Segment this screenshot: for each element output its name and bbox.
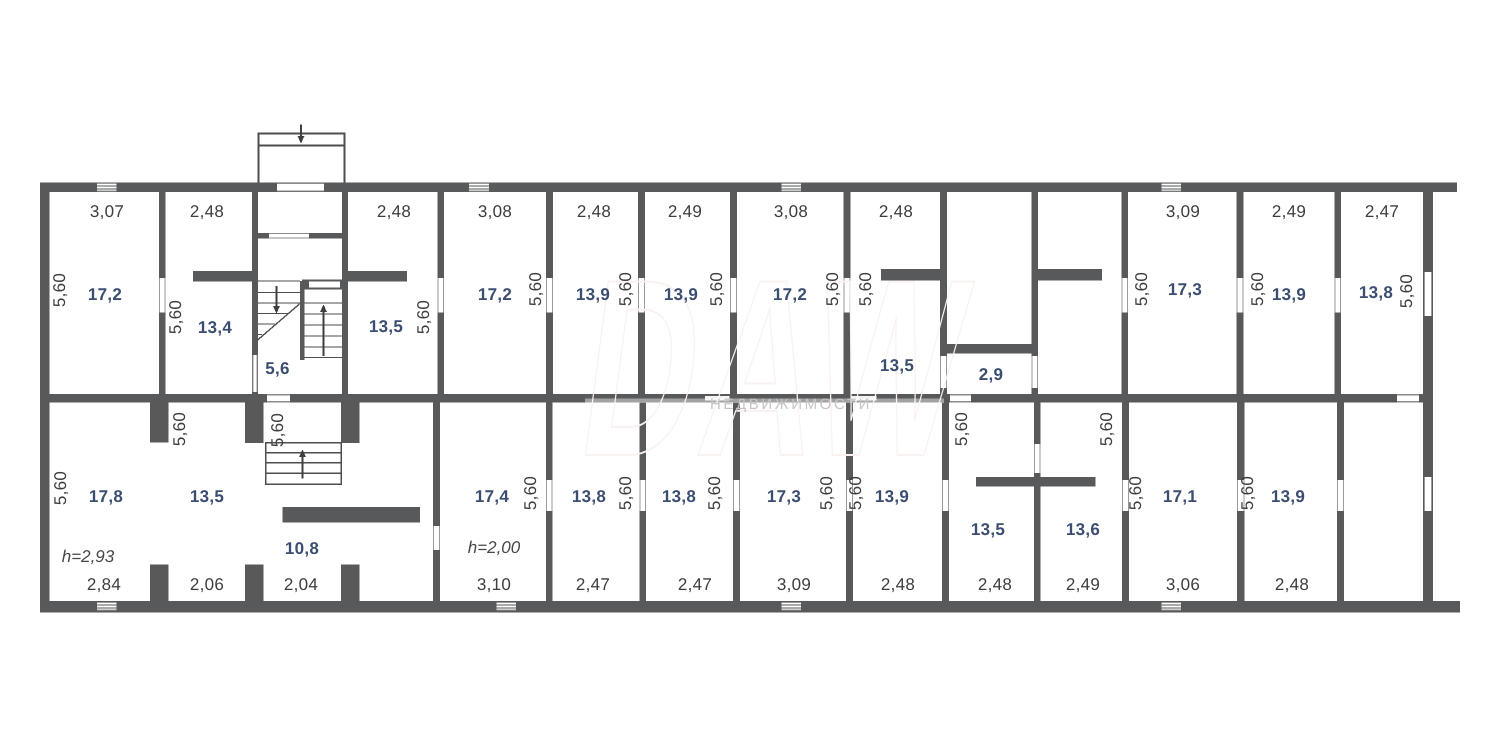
svg-text:5,60: 5,60 (521, 476, 540, 510)
svg-text:13,6: 13,6 (1066, 520, 1100, 539)
svg-text:13,9: 13,9 (875, 487, 909, 506)
svg-text:5,60: 5,60 (823, 272, 842, 306)
svg-text:5,60: 5,60 (51, 471, 70, 505)
svg-text:13,5: 13,5 (190, 487, 224, 506)
svg-text:17,3: 17,3 (1168, 280, 1202, 299)
svg-text:3,08: 3,08 (478, 202, 512, 221)
svg-text:5,60: 5,60 (952, 412, 971, 446)
svg-text:13,8: 13,8 (572, 487, 606, 506)
svg-text:2,04: 2,04 (284, 575, 318, 594)
svg-text:3,09: 3,09 (777, 575, 811, 594)
svg-text:2,48: 2,48 (1275, 575, 1309, 594)
svg-text:13,9: 13,9 (664, 285, 698, 304)
svg-text:DAW: DAW (568, 228, 988, 509)
svg-text:5,60: 5,60 (616, 476, 635, 510)
svg-text:2,48: 2,48 (190, 202, 224, 221)
svg-text:5,60: 5,60 (1132, 272, 1151, 306)
svg-text:2,48: 2,48 (879, 202, 913, 221)
svg-text:2,9: 2,9 (979, 365, 1004, 384)
svg-text:2,06: 2,06 (190, 575, 224, 594)
svg-text:17,3: 17,3 (767, 487, 801, 506)
svg-text:17,8: 17,8 (89, 487, 123, 506)
svg-text:13,9: 13,9 (576, 285, 610, 304)
svg-text:2,48: 2,48 (881, 575, 915, 594)
svg-text:3,08: 3,08 (774, 202, 808, 221)
svg-text:h=2,00: h=2,00 (468, 538, 521, 557)
svg-text:2,49: 2,49 (1066, 575, 1100, 594)
svg-text:13,4: 13,4 (198, 318, 233, 337)
svg-text:2,49: 2,49 (1272, 202, 1306, 221)
svg-text:13,8: 13,8 (662, 487, 696, 506)
svg-text:2,47: 2,47 (576, 575, 610, 594)
svg-text:13,5: 13,5 (971, 520, 1005, 539)
svg-text:2,48: 2,48 (978, 575, 1012, 594)
svg-text:5,6: 5,6 (265, 359, 290, 378)
svg-text:13,5: 13,5 (880, 356, 914, 375)
svg-text:5,60: 5,60 (50, 273, 69, 307)
svg-text:3,09: 3,09 (1166, 202, 1200, 221)
svg-text:h=2,93: h=2,93 (62, 547, 115, 566)
svg-text:5,60: 5,60 (268, 413, 287, 447)
svg-text:13,8: 13,8 (1359, 283, 1393, 302)
svg-text:5,60: 5,60 (1248, 272, 1267, 306)
svg-text:5,60: 5,60 (1126, 476, 1145, 510)
svg-text:2,48: 2,48 (377, 202, 411, 221)
svg-text:17,2: 17,2 (773, 285, 807, 304)
svg-text:10,8: 10,8 (285, 539, 319, 558)
svg-text:2,84: 2,84 (87, 575, 121, 594)
svg-text:2,48: 2,48 (577, 202, 611, 221)
svg-text:2,47: 2,47 (678, 575, 712, 594)
svg-text:5,60: 5,60 (1238, 476, 1257, 510)
svg-text:5,60: 5,60 (1097, 412, 1116, 446)
svg-text:5,60: 5,60 (166, 300, 185, 334)
svg-text:17,2: 17,2 (478, 285, 512, 304)
svg-text:5,60: 5,60 (846, 476, 865, 510)
svg-text:НЕДВИЖИМОСТИ: НЕДВИЖИМОСТИ (710, 396, 872, 413)
svg-text:13,5: 13,5 (369, 317, 403, 336)
svg-text:5,60: 5,60 (616, 272, 635, 306)
svg-text:3,10: 3,10 (477, 575, 511, 594)
svg-text:13,9: 13,9 (1272, 285, 1306, 304)
svg-text:3,07: 3,07 (90, 202, 124, 221)
svg-text:17,1: 17,1 (1163, 487, 1197, 506)
svg-text:5,60: 5,60 (705, 476, 724, 510)
svg-text:3,06: 3,06 (1166, 575, 1200, 594)
svg-text:17,2: 17,2 (88, 285, 122, 304)
svg-text:5,60: 5,60 (817, 476, 836, 510)
svg-text:17,4: 17,4 (475, 487, 510, 506)
svg-text:5,60: 5,60 (526, 272, 545, 306)
svg-text:13,9: 13,9 (1271, 487, 1305, 506)
svg-text:5,60: 5,60 (1397, 274, 1416, 308)
svg-text:5,60: 5,60 (707, 272, 726, 306)
svg-text:2,47: 2,47 (1365, 202, 1399, 221)
svg-text:2,49: 2,49 (668, 202, 702, 221)
svg-text:5,60: 5,60 (414, 300, 433, 334)
svg-text:5,60: 5,60 (856, 272, 875, 306)
svg-text:5,60: 5,60 (170, 412, 189, 446)
